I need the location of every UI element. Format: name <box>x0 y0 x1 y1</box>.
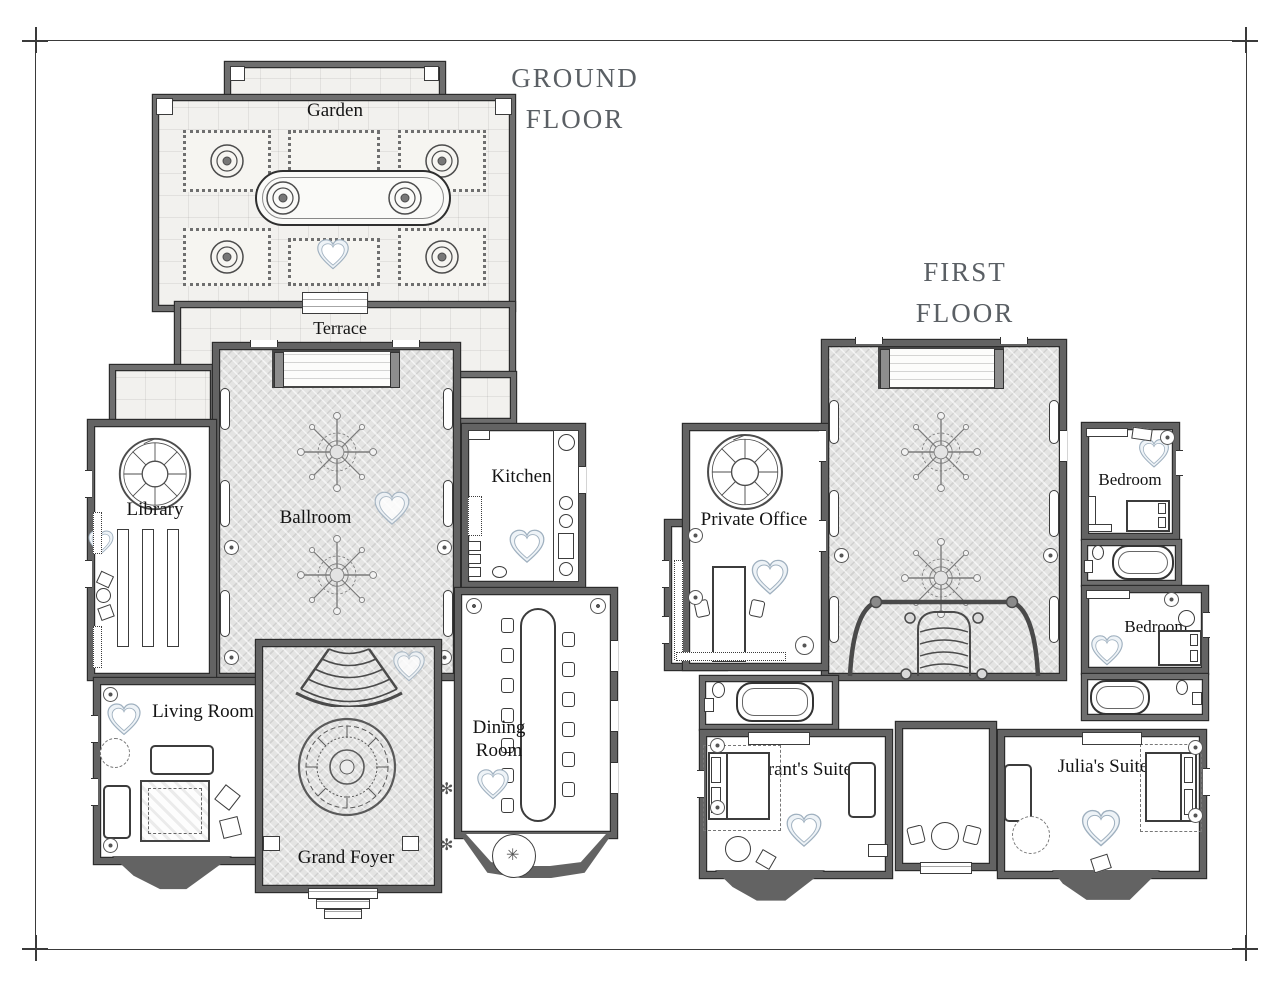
sconce-icon <box>224 540 239 555</box>
terrace-right-wing <box>452 372 516 424</box>
window <box>1203 768 1210 796</box>
gallery-bench <box>1049 596 1059 643</box>
bed-blanket-line <box>726 753 728 819</box>
toilet-icon <box>1092 545 1104 560</box>
heart-icon <box>314 236 352 274</box>
stage-pillar <box>274 352 284 388</box>
garden-tower <box>156 98 173 115</box>
window <box>579 466 586 494</box>
bed-pillow <box>711 757 721 783</box>
julias-bay-window <box>1052 870 1160 904</box>
library-table <box>96 588 111 603</box>
bed-blanket-line <box>1180 753 1182 821</box>
fountain-icon <box>422 237 462 277</box>
sconce-icon <box>834 548 849 563</box>
sconce-icon <box>103 838 118 853</box>
window <box>662 560 669 588</box>
bed-pillow <box>1184 757 1193 783</box>
window <box>697 770 704 798</box>
heart-icon <box>748 556 792 600</box>
sconce-icon <box>1043 548 1058 563</box>
sink-icon <box>704 698 714 712</box>
sconce-icon <box>710 800 725 815</box>
sconce-icon <box>1188 740 1203 755</box>
dining-chair <box>562 692 575 707</box>
wall-shelf <box>1086 428 1128 437</box>
kitchen-sink <box>559 496 573 510</box>
room-label-library: Library <box>102 498 208 521</box>
foyer-corner-detail <box>402 836 419 851</box>
floor-medallion-icon <box>292 712 402 822</box>
office-shelf <box>674 560 683 660</box>
gallery-bench <box>1049 490 1059 537</box>
ballroom-bench <box>220 388 230 430</box>
heart-icon <box>371 488 413 530</box>
fountain-icon <box>207 141 247 181</box>
heart-icon <box>506 526 548 568</box>
bookshelf <box>117 529 129 647</box>
sconce-icon <box>1178 610 1195 627</box>
office-shelf <box>676 652 786 661</box>
dining-chair <box>562 722 575 737</box>
heart-icon <box>390 648 428 686</box>
window <box>1176 450 1183 476</box>
window <box>611 700 618 732</box>
closet <box>1088 524 1112 532</box>
sconce-icon <box>224 650 239 665</box>
heart-icon <box>783 810 825 852</box>
sofa <box>150 745 214 775</box>
gallery-bench <box>1049 400 1059 444</box>
bay-round-table <box>725 836 751 862</box>
kitchen-stove-burner <box>558 434 575 451</box>
kitchen-appliance <box>468 567 481 577</box>
stage-pillar <box>390 352 400 388</box>
dining-chair <box>501 678 514 693</box>
ornate-rug <box>140 780 210 842</box>
first-floor-title: FIRST FLOOR <box>895 252 1035 333</box>
toilet-icon <box>1176 680 1188 695</box>
garden-tower <box>424 66 439 81</box>
wall-shelf <box>1086 590 1130 599</box>
window <box>611 640 618 672</box>
stair-balustrade-icon <box>844 588 1044 680</box>
foyer-corner-detail <box>263 836 280 851</box>
window <box>250 340 278 347</box>
stage-pillar <box>994 349 1004 389</box>
dining-chair <box>562 752 575 767</box>
round-rug <box>1012 816 1050 854</box>
bookshelf <box>142 529 154 647</box>
fountain-icon <box>207 237 247 277</box>
entry-steps <box>324 909 362 919</box>
plant-icon: ✻ <box>440 782 453 798</box>
sconce-icon <box>1160 430 1175 445</box>
plant-icon: ✳ <box>506 848 519 864</box>
gallery-bench <box>829 490 839 537</box>
toilet-icon <box>712 682 725 698</box>
dining-table <box>520 608 556 822</box>
chandelier-icon <box>898 409 984 495</box>
bench-seat <box>868 844 888 857</box>
fountain-icon <box>263 178 303 218</box>
grants-bay-window <box>715 870 825 904</box>
ballroom-stage <box>272 350 400 388</box>
bathtub-icon <box>736 682 814 722</box>
dresser <box>1082 732 1142 745</box>
window <box>1203 612 1210 638</box>
kitchen-oven <box>558 533 574 559</box>
kitchen-appliance <box>468 541 481 551</box>
chandelier-icon <box>294 532 380 618</box>
landing-table <box>931 822 959 850</box>
dining-chair <box>501 618 514 633</box>
garden-tower <box>230 66 245 81</box>
dining-chair <box>562 632 575 647</box>
sofa <box>848 762 876 818</box>
ballroom-bench <box>443 590 453 637</box>
kitchen-pantry-shelf <box>468 496 482 536</box>
dining-chair <box>562 662 575 677</box>
window <box>91 715 98 743</box>
sofa <box>103 785 131 839</box>
stage-pillar <box>880 349 890 389</box>
ground-floor-plan: GROUND FLOOR Garden Terrace <box>0 0 660 989</box>
landing-steps <box>920 862 972 874</box>
bed-pillow <box>1190 650 1198 662</box>
room-label-grand-foyer: Grand Foyer <box>290 846 402 869</box>
desk <box>1131 427 1152 442</box>
ground-floor-title: GROUND FLOOR <box>500 58 650 139</box>
window <box>819 520 826 552</box>
heart-icon <box>1078 806 1124 852</box>
plant-icon: ✻ <box>440 838 453 854</box>
ballroom-bench <box>220 590 230 637</box>
heart-icon <box>474 766 512 804</box>
room-label-living-room: Living Room <box>148 700 258 723</box>
heart-icon <box>104 700 144 740</box>
terrace-left-wing <box>110 365 216 427</box>
sconce-icon <box>466 598 482 614</box>
kitchen-appliance <box>468 554 481 564</box>
gallery-bench <box>829 596 839 643</box>
kitchen-sink <box>559 562 573 576</box>
sconce-icon <box>437 540 452 555</box>
fountain-icon <box>385 178 425 218</box>
sconce-icon <box>688 590 703 605</box>
dresser <box>748 732 810 745</box>
room-label-bedroom-upper: Bedroom <box>1086 470 1174 491</box>
floorplan-drawing: GROUND FLOOR Garden Terrace <box>0 0 1280 989</box>
terrace-steps <box>302 292 368 314</box>
gallery-stage <box>878 347 1004 389</box>
window <box>85 560 92 588</box>
window <box>819 430 826 462</box>
room-label-terrace: Terrace <box>285 318 395 340</box>
bed-pillow <box>1158 517 1166 528</box>
gallery-bench <box>829 400 839 444</box>
window <box>662 616 669 644</box>
entry-steps <box>308 888 378 899</box>
room-label-garden: Garden <box>275 99 395 122</box>
entry-steps <box>316 899 370 909</box>
window <box>1060 430 1067 462</box>
window <box>85 470 92 498</box>
ballroom-bench <box>443 388 453 430</box>
kitchen-shelf <box>468 430 490 440</box>
living-bay-window <box>112 856 232 892</box>
sink-icon <box>1192 692 1202 705</box>
sconce-icon <box>688 528 703 543</box>
wall-shelf <box>93 626 102 668</box>
room-label-private-office: Private Office <box>698 508 810 531</box>
office-desk <box>712 566 746 662</box>
sconce-icon <box>1188 808 1203 823</box>
ballroom-bench <box>443 480 453 527</box>
kitchen-appliance <box>492 566 507 578</box>
kitchen-sink <box>559 514 573 528</box>
sconce-icon <box>795 636 814 655</box>
window <box>855 337 883 344</box>
garden-tower <box>495 98 512 115</box>
dining-chair <box>562 782 575 797</box>
spiral-staircase-icon <box>703 430 787 514</box>
dining-chair <box>501 648 514 663</box>
room-label-ballroom: Ballroom <box>258 506 373 529</box>
window <box>392 340 420 347</box>
window <box>611 762 618 794</box>
bed-pillow <box>1190 634 1198 646</box>
sofa <box>1004 764 1032 822</box>
bathtub-icon <box>1090 680 1150 715</box>
wall-shelf <box>93 512 102 554</box>
window <box>91 778 98 806</box>
window <box>1000 337 1028 344</box>
sconce-icon <box>710 738 725 753</box>
bathtub-icon <box>1112 545 1174 580</box>
chandelier-icon <box>294 409 380 495</box>
sconce-icon <box>590 598 606 614</box>
sink-icon <box>1084 560 1093 573</box>
bookshelf <box>167 529 179 647</box>
first-floor-plan: FIRST FLOOR <box>640 0 1280 989</box>
sconce-icon <box>1164 592 1179 607</box>
bed-pillow <box>1158 503 1166 514</box>
living-round-table <box>100 738 130 768</box>
room-label-dining-room: Dining Room <box>448 716 550 762</box>
heart-icon <box>1088 632 1126 670</box>
ballroom-bench <box>220 480 230 527</box>
sconce-icon <box>103 687 118 702</box>
